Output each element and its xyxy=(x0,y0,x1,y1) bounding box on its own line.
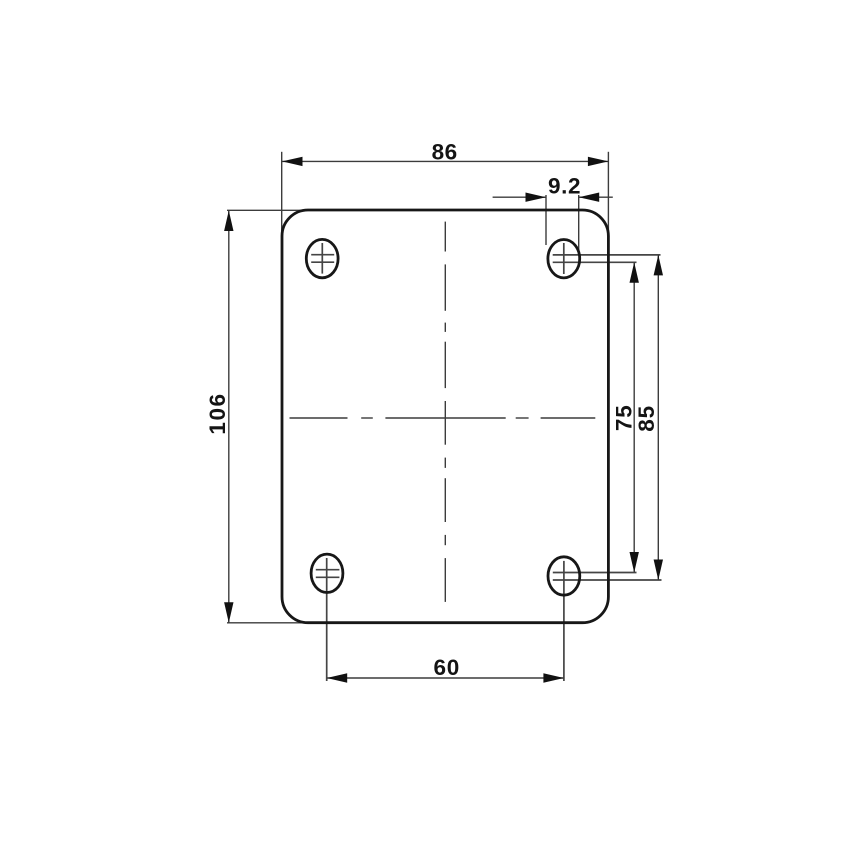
svg-text:75: 75 xyxy=(611,404,636,431)
svg-text:60: 60 xyxy=(433,655,460,680)
svg-text:86: 86 xyxy=(432,139,458,164)
svg-text:106: 106 xyxy=(205,392,230,434)
svg-text:85: 85 xyxy=(634,405,659,432)
svg-text:9.2: 9.2 xyxy=(548,174,581,199)
